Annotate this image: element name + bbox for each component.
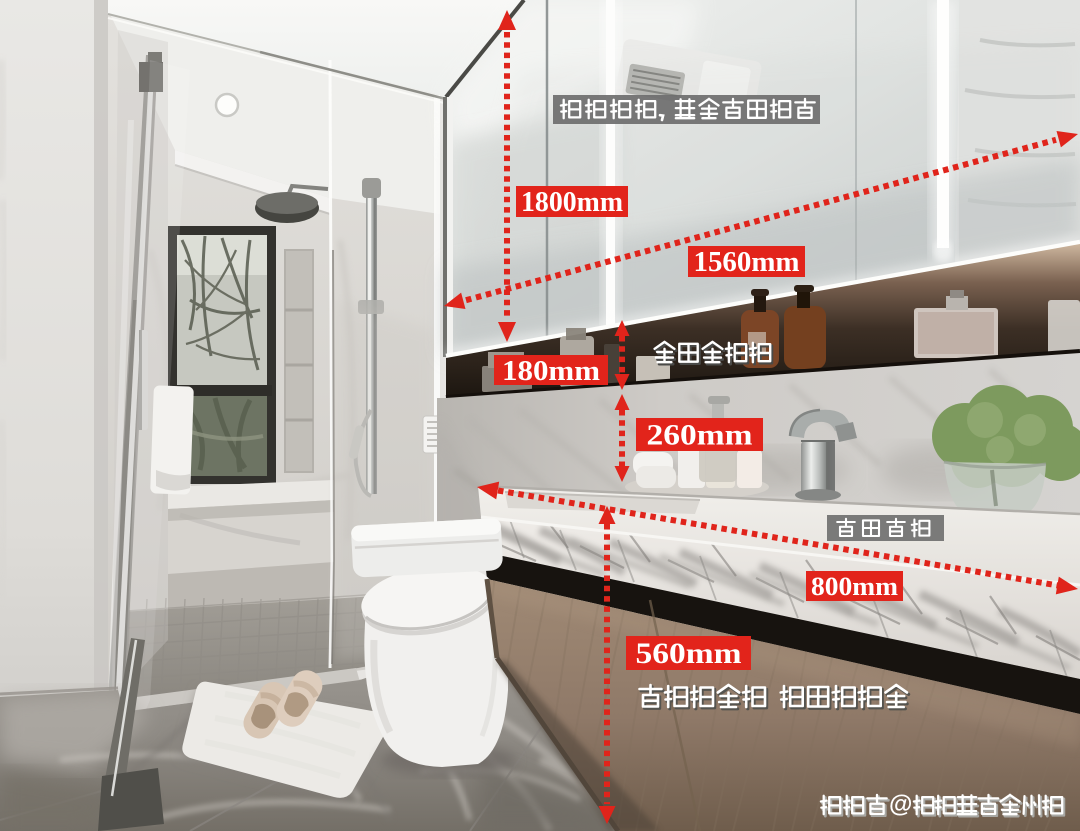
svg-text:1560mm: 1560mm: [694, 247, 800, 278]
svg-text:1800mm: 1800mm: [521, 187, 623, 218]
svg-text:560mm: 560mm: [636, 637, 742, 670]
svg-text:@: @: [889, 791, 912, 818]
svg-text:800mm: 800mm: [811, 572, 898, 601]
svg-text:260mm: 260mm: [647, 419, 753, 452]
svg-text:180mm: 180mm: [502, 355, 600, 387]
